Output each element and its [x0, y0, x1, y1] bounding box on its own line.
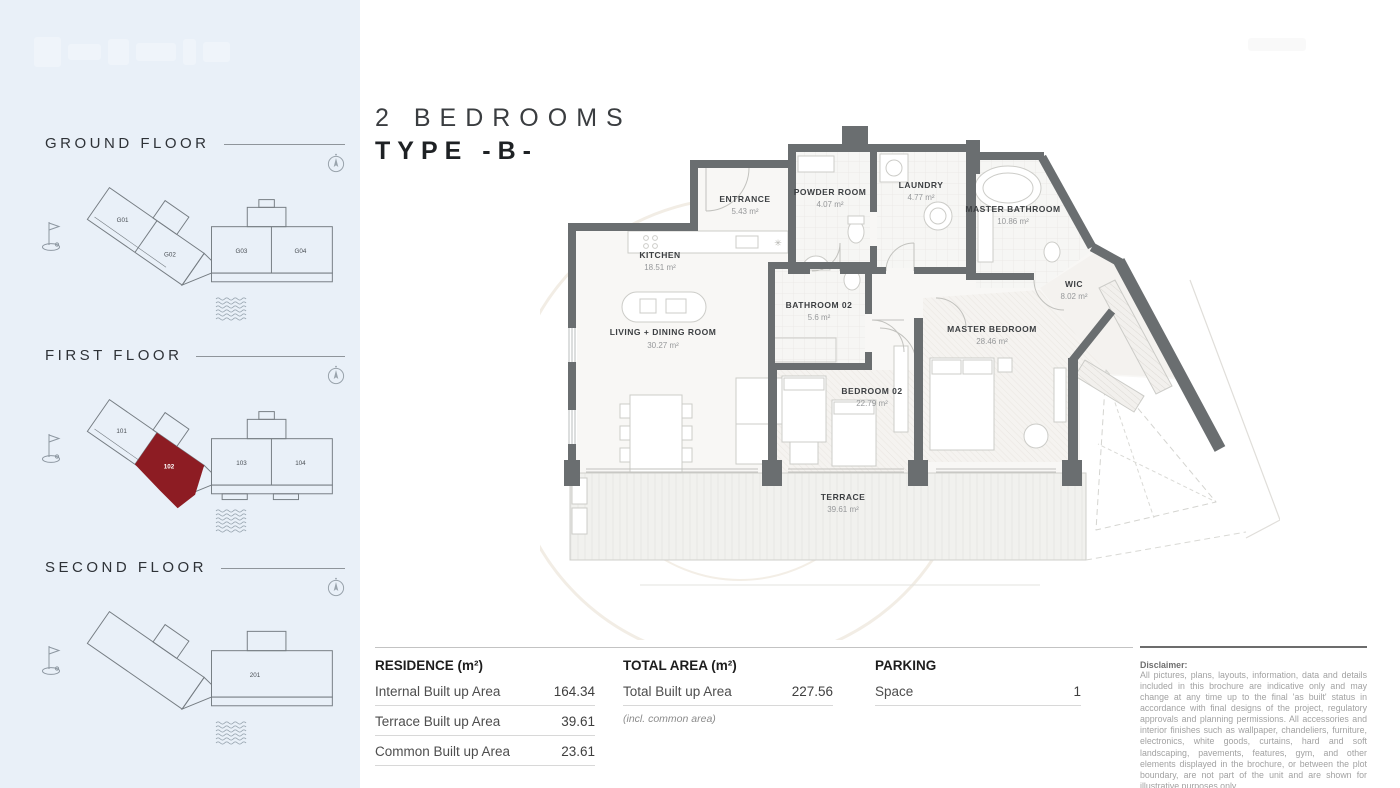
thumb-block	[212, 227, 333, 273]
floor-header-second: SECOND FLOOR	[45, 559, 345, 576]
thumb-connector	[182, 253, 211, 285]
disclaimer-title: Disclaimer:	[1140, 660, 1367, 670]
floor-terrace	[570, 473, 1086, 560]
brochure-page: GROUND FLOOR	[0, 0, 1400, 788]
svg-text:39.61 m²: 39.61 m²	[827, 505, 859, 514]
disclaimer-body: All pictures, plans, layouts, informatio…	[1140, 670, 1367, 788]
nightstand	[998, 358, 1012, 372]
svg-text:MASTER BATHROOM: MASTER BATHROOM	[965, 204, 1060, 214]
svg-text:POWDER ROOM: POWDER ROOM	[794, 187, 867, 197]
brand-watermark	[34, 36, 230, 68]
brand-watermark-glyph	[136, 43, 176, 61]
table-row: Total Built up Area 227.56	[623, 682, 833, 706]
svg-text:10.86 m²: 10.86 m²	[997, 217, 1029, 226]
dining-table	[630, 395, 682, 473]
floor-label-second: SECOND FLOOR	[45, 559, 207, 576]
svg-text:4.07 m²: 4.07 m²	[816, 200, 843, 209]
unit-G04[interactable]: G04	[295, 248, 307, 255]
bed-double	[930, 358, 994, 450]
brand-watermark-glyph	[68, 44, 101, 60]
total-area-header: TOTAL AREA (m²)	[623, 658, 833, 673]
residence-table: RESIDENCE (m²) Internal Built up Area 16…	[375, 658, 595, 772]
floor-header-ground: GROUND FLOOR	[45, 135, 345, 152]
brand-watermark-glyph	[34, 37, 61, 67]
svg-text:BATHROOM 02: BATHROOM 02	[786, 300, 853, 310]
masterbath-vanity	[978, 210, 993, 262]
svg-text:WIC: WIC	[1065, 279, 1083, 289]
thumb-notch	[153, 201, 189, 235]
unit-G03[interactable]: G03	[236, 248, 248, 255]
svg-text:LAUNDRY: LAUNDRY	[899, 180, 944, 190]
row-value: 23.61	[561, 744, 595, 759]
brand-watermark-glyph	[183, 39, 196, 65]
row-label: Terrace Built up Area	[375, 714, 500, 729]
svg-text:KITCHEN: KITCHEN	[639, 250, 680, 260]
kitchen-island	[622, 292, 706, 322]
floor-thumbnail-first: 101 102 103 104	[52, 378, 342, 510]
row-value: 1	[1073, 684, 1081, 699]
svg-text:MASTER BEDROOM: MASTER BEDROOM	[947, 324, 1037, 334]
svg-text:4.77 m²: 4.77 m²	[907, 193, 934, 202]
row-value: 227.56	[792, 684, 833, 699]
total-area-note: (incl. common area)	[623, 713, 833, 725]
floor-thumbnail-ground: G01 G02 G03 G04	[52, 166, 342, 298]
row-value: 164.34	[554, 684, 595, 699]
unit-G02[interactable]: G02	[164, 252, 176, 259]
table-row: Internal Built up Area 164.34	[375, 682, 595, 706]
floor-thumbnail-second: 201	[52, 590, 342, 722]
water-waves-icon	[215, 508, 247, 534]
table-row: Common Built up Area 23.61	[375, 742, 595, 766]
divider	[221, 568, 345, 569]
washer	[880, 154, 908, 182]
hob-symbol: ✳	[774, 238, 782, 248]
divider	[196, 356, 345, 357]
svg-text:LIVING + DINING ROOM: LIVING + DINING ROOM	[610, 327, 717, 337]
floor-label-first: FIRST FLOOR	[45, 347, 182, 364]
total-area-table: TOTAL AREA (m²) Total Built up Area 227.…	[623, 658, 833, 725]
unit-101[interactable]: 101	[116, 428, 127, 435]
unit-201[interactable]: 201	[250, 672, 261, 679]
unit-103[interactable]: 103	[236, 460, 247, 467]
powder-sink	[798, 156, 834, 172]
golf-flag-icon	[40, 432, 66, 464]
masterbath-toilet	[1044, 242, 1060, 262]
sidebar: GROUND FLOOR	[0, 0, 360, 788]
row-label: Space	[875, 684, 913, 699]
svg-text:BEDROOM 02: BEDROOM 02	[841, 386, 902, 396]
unit-102[interactable]: 102	[164, 464, 175, 471]
parking-header: PARKING	[875, 658, 1081, 673]
svg-text:18.51 m²: 18.51 m²	[644, 263, 676, 272]
floor-section-ground: GROUND FLOOR	[0, 128, 360, 340]
parking-table: PARKING Space 1	[875, 658, 1081, 712]
golf-flag-icon	[40, 220, 66, 252]
row-value: 39.61	[561, 714, 595, 729]
bed-single	[782, 376, 826, 442]
unit-104[interactable]: 104	[295, 460, 306, 467]
bed-single	[832, 400, 876, 466]
svg-text:30.27 m²: 30.27 m²	[647, 341, 679, 350]
row-label: Total Built up Area	[623, 684, 732, 699]
planter	[572, 508, 587, 534]
svg-text:ENTRANCE: ENTRANCE	[719, 194, 770, 204]
wardrobe	[1054, 368, 1066, 422]
residence-header: RESIDENCE (m²)	[375, 658, 595, 673]
floor-label-ground: GROUND FLOOR	[45, 135, 210, 152]
svg-text:22.79 m²: 22.79 m²	[856, 399, 888, 408]
row-label: Internal Built up Area	[375, 684, 500, 699]
dryer	[924, 202, 952, 230]
armchair	[1024, 424, 1048, 448]
svg-text:TERRACE: TERRACE	[821, 492, 866, 502]
svg-text:8.02 m²: 8.02 m²	[1060, 292, 1087, 301]
brand-watermark-glyph	[108, 39, 128, 65]
svg-text:5.6 m²: 5.6 m²	[808, 313, 831, 322]
brand-watermark-glyph	[203, 42, 230, 62]
unit-G01[interactable]: G01	[117, 217, 129, 224]
floor-section-first: FIRST FLOOR	[0, 340, 360, 552]
water-waves-icon	[215, 296, 247, 322]
table-row: Space 1	[875, 682, 1081, 706]
floor-section-second: SECOND FLOOR 201	[0, 552, 360, 764]
divider	[224, 144, 345, 145]
disclaimer: Disclaimer: All pictures, plans, layouts…	[1140, 646, 1367, 788]
svg-text:28.46 m²: 28.46 m²	[976, 337, 1008, 346]
divider	[375, 647, 1133, 648]
row-label: Common Built up Area	[375, 744, 510, 759]
table-row: Terrace Built up Area 39.61	[375, 712, 595, 736]
golf-flag-icon	[40, 644, 66, 676]
water-waves-icon	[215, 720, 247, 746]
floor-header-first: FIRST FLOOR	[45, 347, 345, 364]
svg-text:5.43 m²: 5.43 m²	[731, 207, 758, 216]
floorplan: ✳ ENTRANCE 5.43 m² POWDER ROOM 4.07 m² L…	[540, 40, 1280, 640]
